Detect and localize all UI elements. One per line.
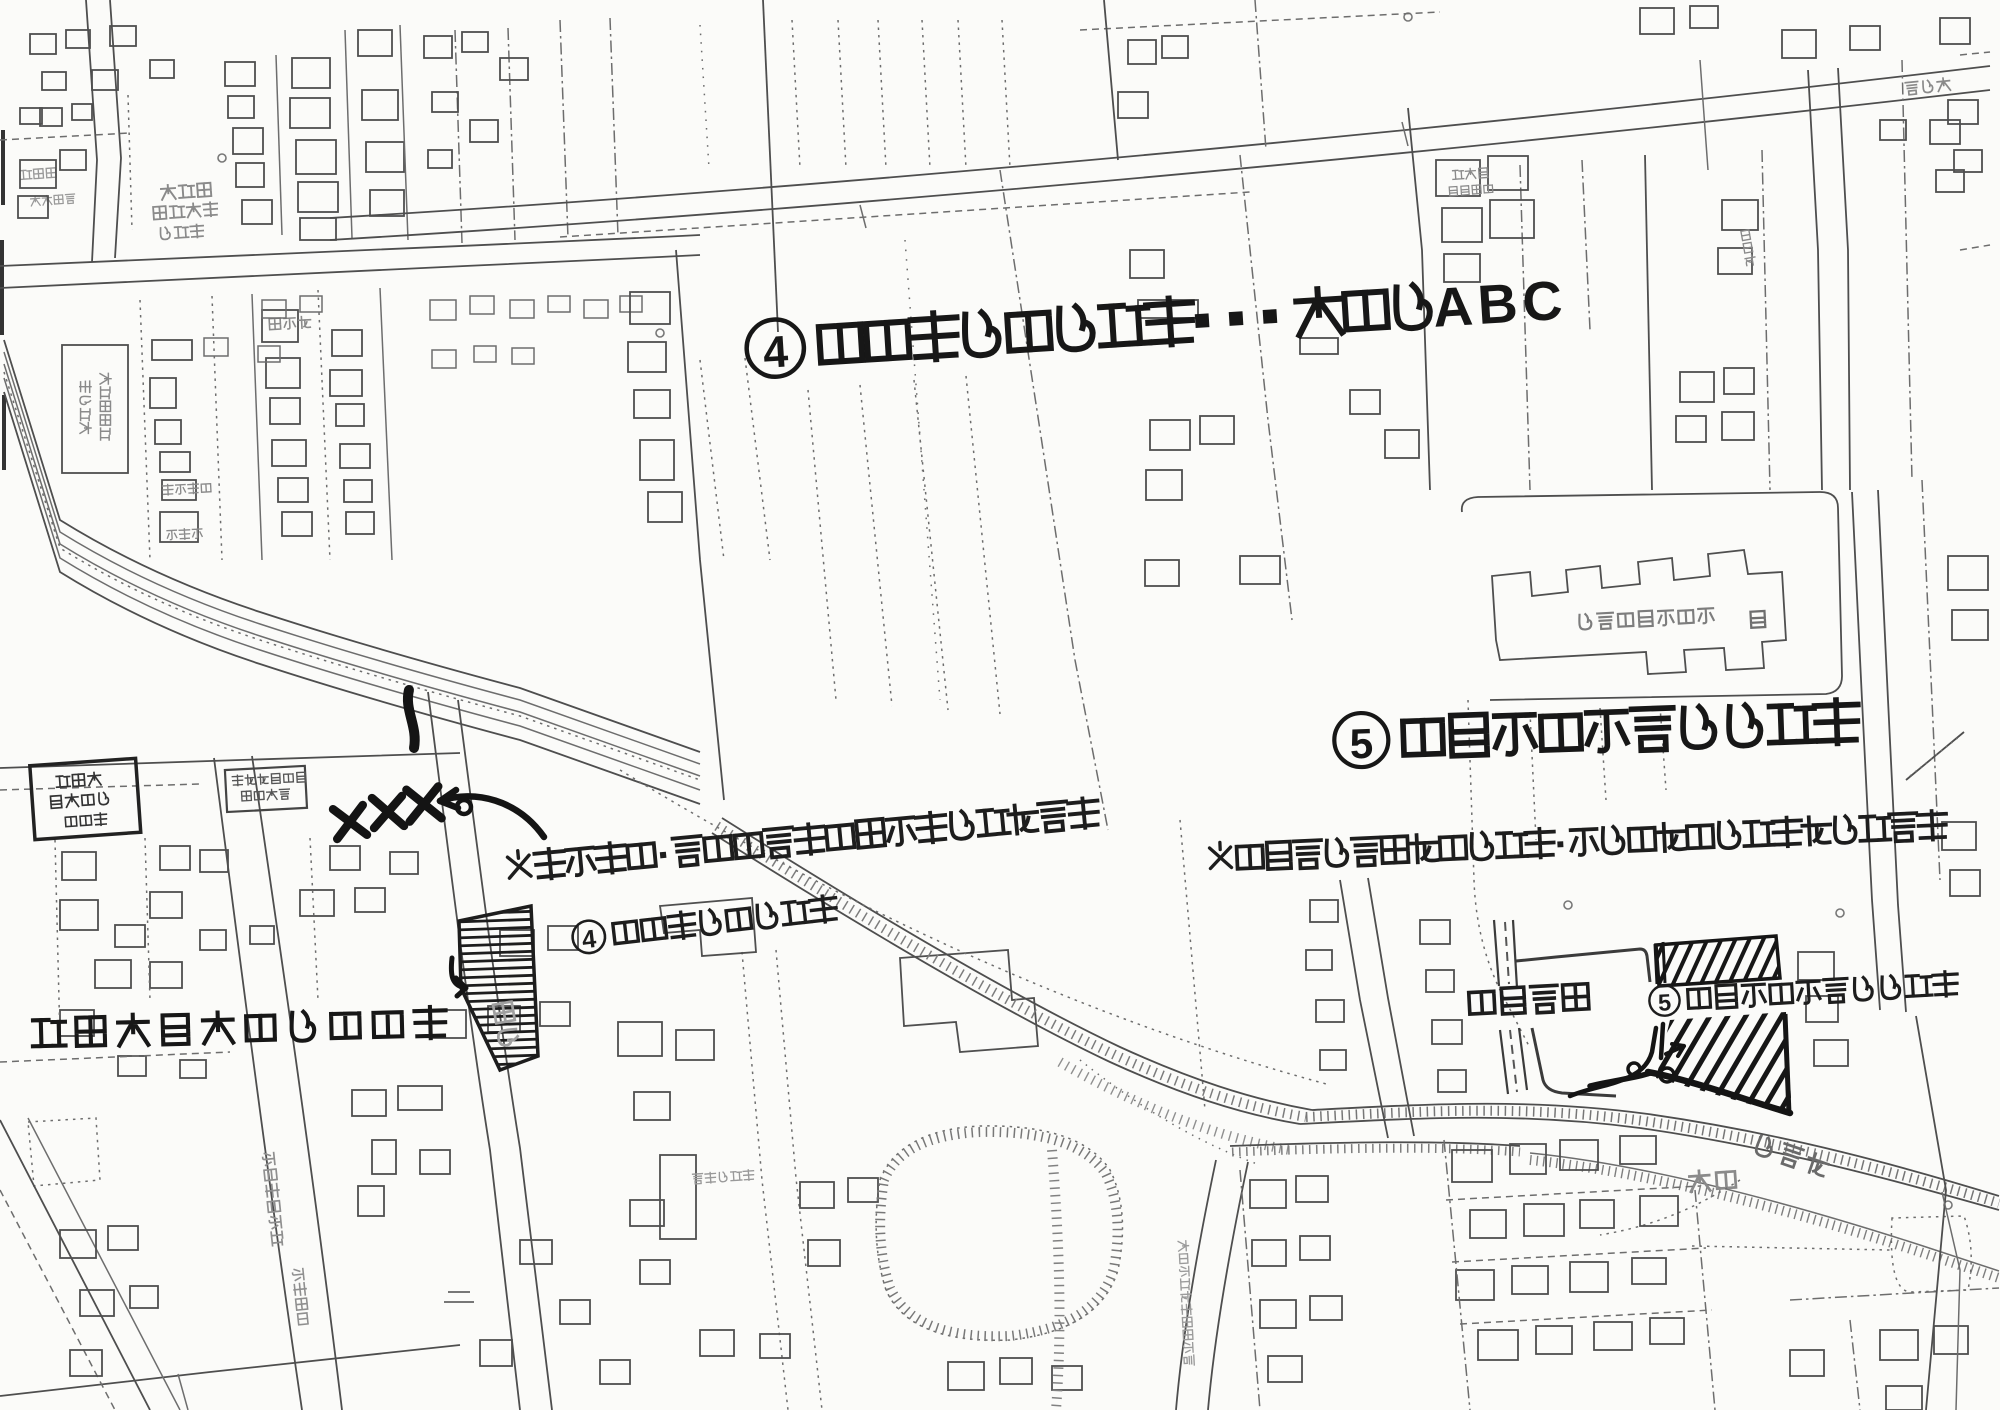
svg-text:5: 5	[1349, 720, 1374, 768]
svg-text:4: 4	[762, 327, 790, 377]
svg-text:B: B	[1476, 272, 1520, 336]
svg-text:4: 4	[581, 925, 598, 954]
svg-text:5: 5	[1657, 989, 1672, 1016]
svg-text:C: C	[1521, 269, 1565, 333]
svg-text:A: A	[1431, 274, 1475, 338]
